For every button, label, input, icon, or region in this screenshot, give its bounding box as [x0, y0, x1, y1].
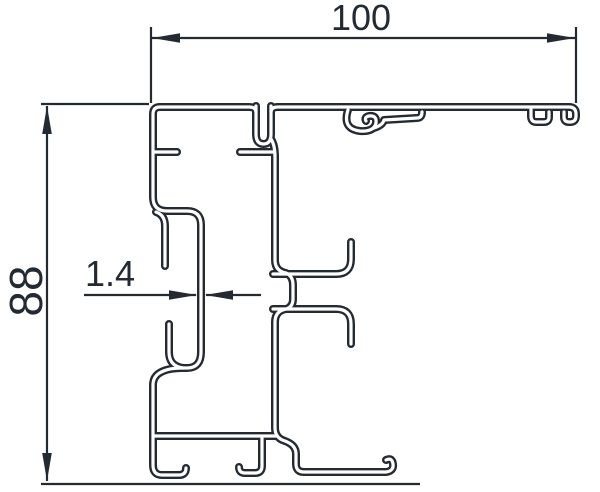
- dimension-width: 100: [151, 0, 576, 103]
- arrowhead-right-icon: [547, 33, 575, 43]
- arrowhead-down-icon: [42, 453, 52, 481]
- width-dimension-label: 100: [331, 0, 391, 38]
- profile-wall-outer-lines: [153, 106, 576, 475]
- technical-drawing: 100 88 1.4: [0, 0, 600, 492]
- thickness-dimension-label: 1.4: [85, 253, 135, 294]
- profile-wall-hollow-core: [153, 106, 576, 475]
- dimension-thickness: 1.4: [84, 253, 261, 300]
- arrowhead-up-icon: [42, 106, 52, 134]
- profile-drawing-svg: 100 88 1.4: [0, 0, 600, 492]
- height-dimension-label: 88: [0, 265, 52, 316]
- arrowhead-right-icon: [169, 290, 197, 300]
- arrowhead-left-icon: [205, 290, 233, 300]
- profile-outline: [153, 106, 576, 475]
- arrowhead-left-icon: [152, 33, 180, 43]
